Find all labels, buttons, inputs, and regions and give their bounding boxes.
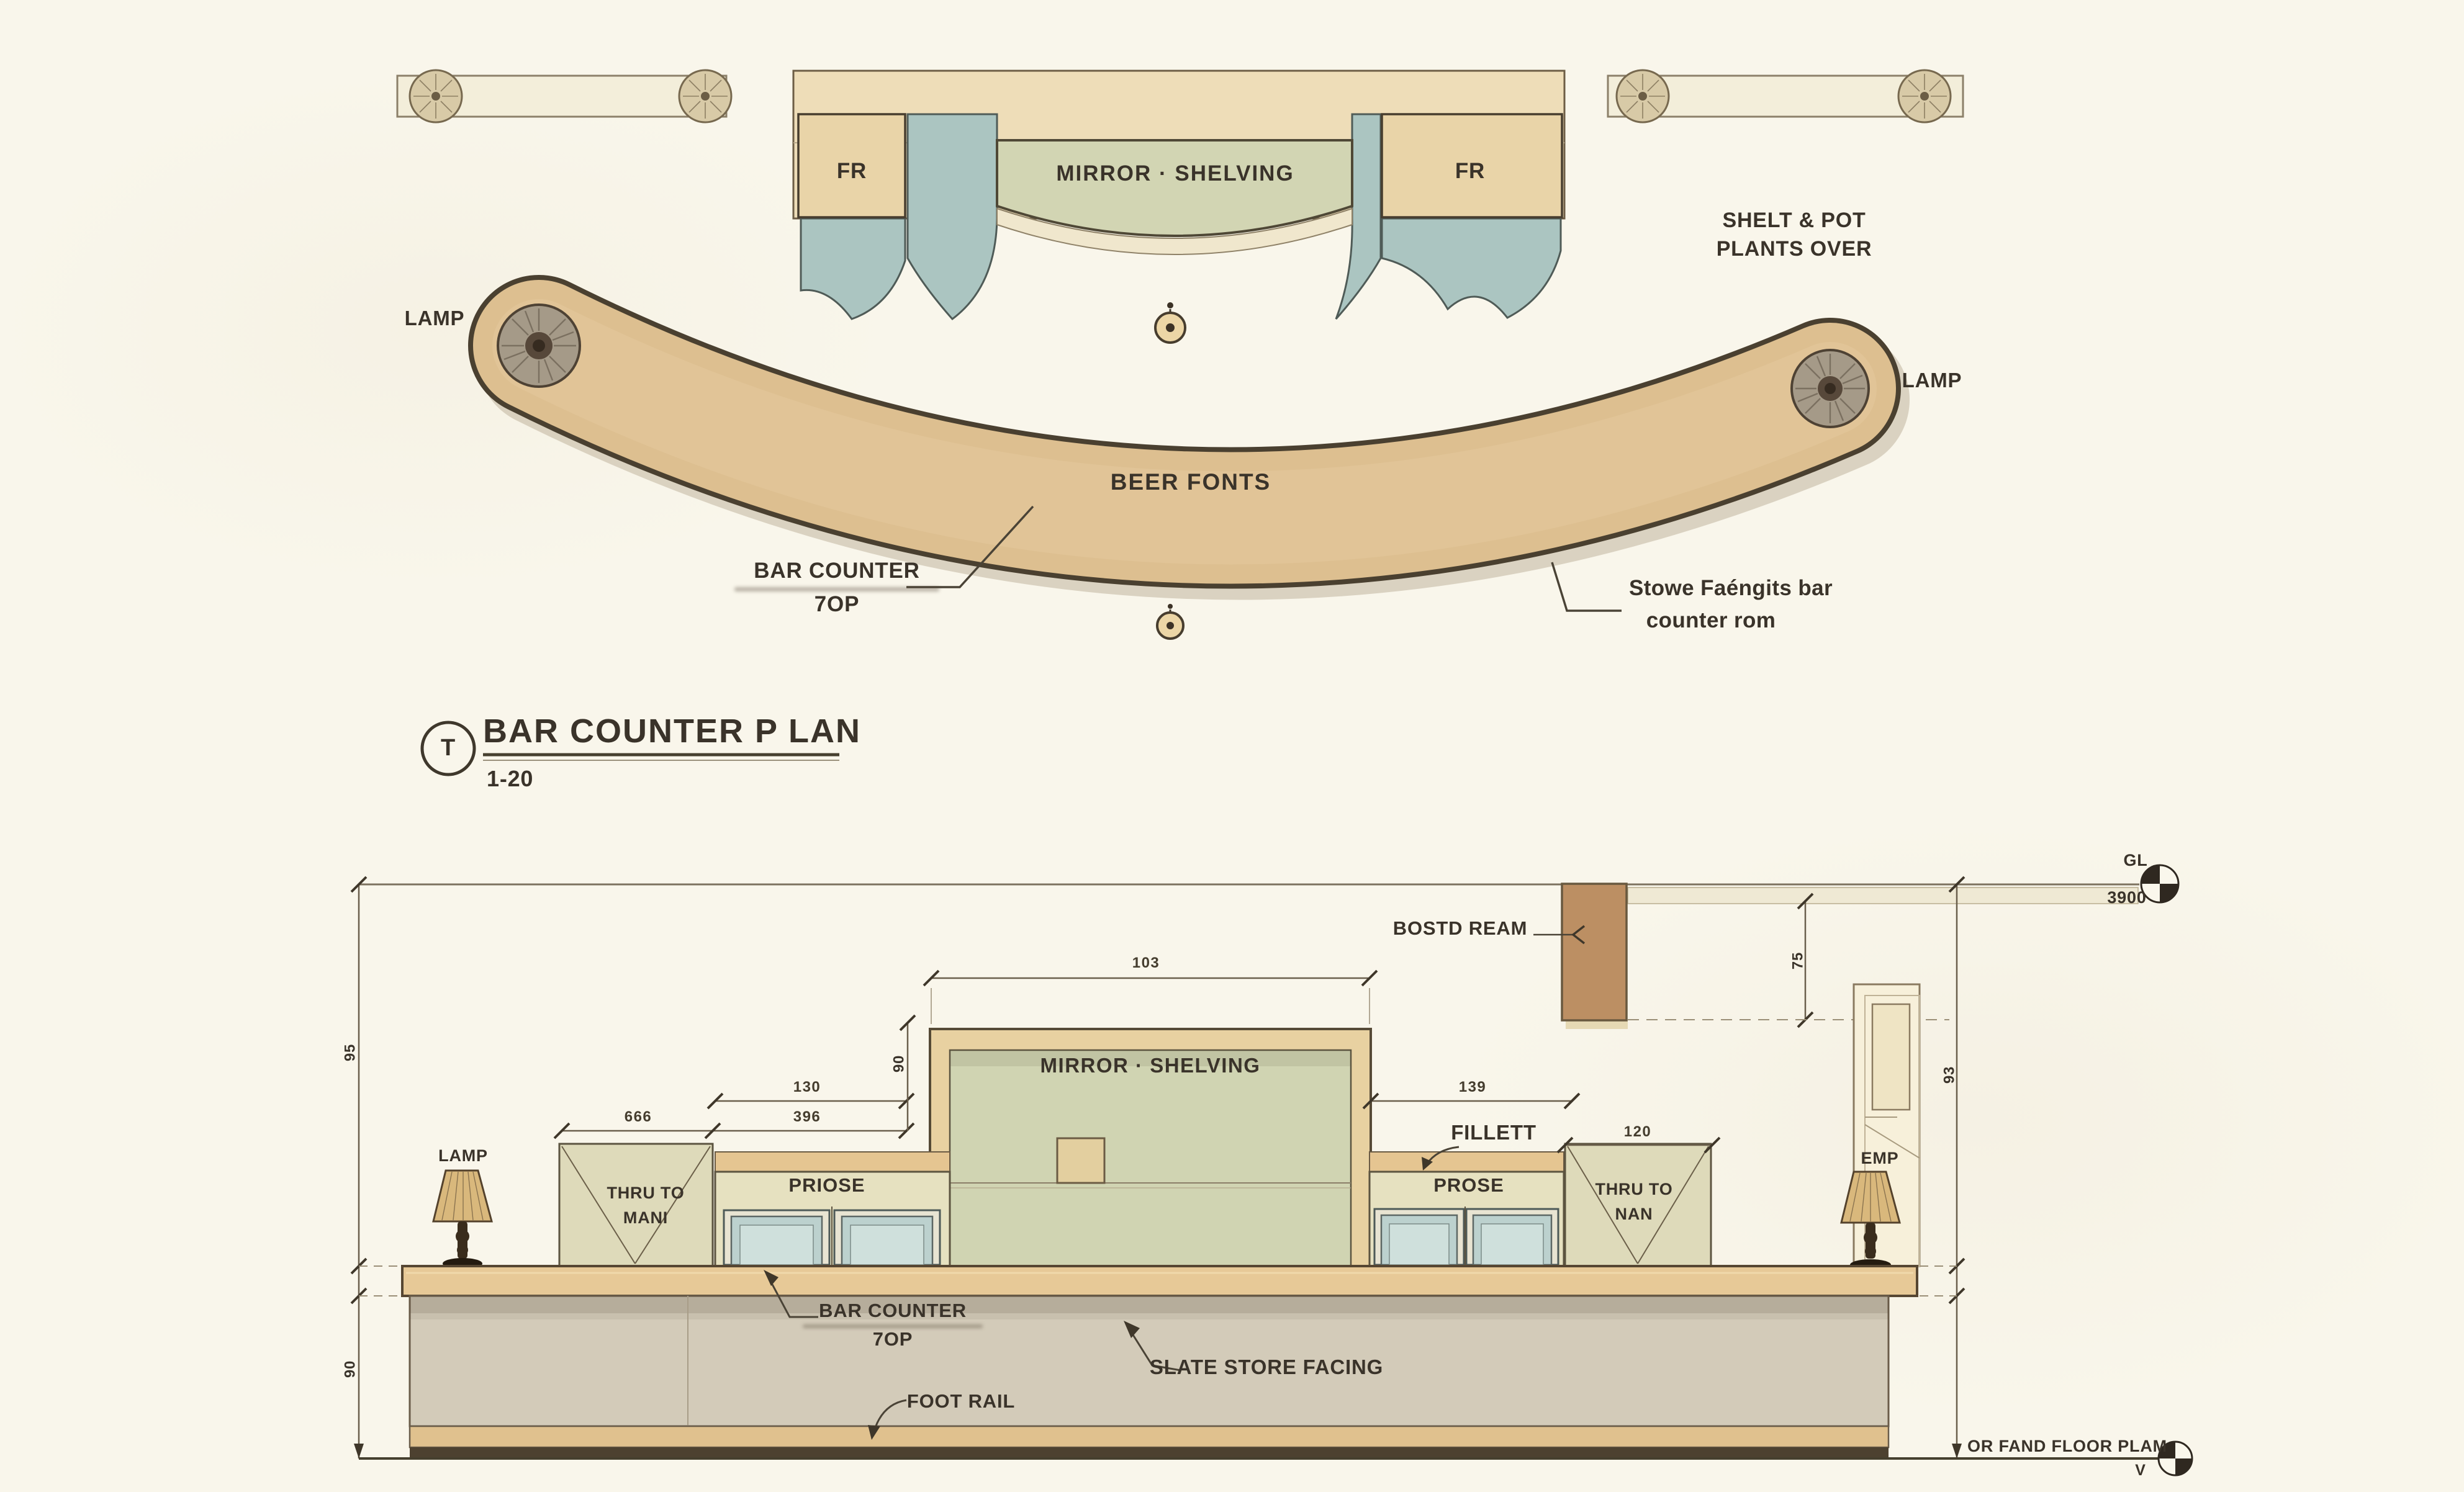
leader-line — [1552, 562, 1622, 611]
elev-lamp-label-right: EMP — [1861, 1149, 1899, 1167]
dim-130-label: 130 — [793, 1079, 821, 1096]
beam-label: BOSTD REAM — [1393, 919, 1527, 939]
elev-cabinet-left — [715, 1152, 950, 1266]
thru-left-line2: MANI — [623, 1209, 668, 1226]
dim-side-lower-label: 90 — [342, 1360, 358, 1378]
thru-right-line1: THRU TO — [1595, 1180, 1672, 1198]
plan-counter-label-line1: BAR COUNTER — [754, 560, 919, 583]
mirror-shelving-panel — [997, 140, 1352, 236]
datum-symbol-icon — [2141, 865, 2178, 902]
elev-mirror-shelving-label: MIRROR · SHELVING — [1040, 1055, 1261, 1077]
dim-right-main — [1920, 877, 1964, 1458]
gl-value: 3900 — [2107, 889, 2146, 906]
dim-center-width-label: 103 — [1132, 955, 1160, 972]
elev-thru-panel-left — [559, 1144, 713, 1266]
cabinet-left-label: PRIOSE — [788, 1175, 865, 1196]
elev-countertop — [402, 1266, 1917, 1296]
pot-plant-icon — [679, 70, 731, 122]
ghost-subtext — [734, 587, 939, 591]
title-marker: T — [441, 736, 456, 761]
dim-93-label: 93 — [1941, 1066, 1957, 1084]
foot-rail-label: FOOT RAIL — [907, 1391, 1015, 1412]
drawing-scale: 1-20 — [487, 767, 533, 791]
table-lamp-icon — [433, 1171, 492, 1269]
plan-lamp-label-left: LAMP — [405, 308, 465, 330]
plan-back-fitting — [793, 71, 1564, 319]
shelf-note-line1: SHELT & POT — [1722, 210, 1866, 232]
elev-cabinet-right — [1370, 1152, 1564, 1266]
dim-left-main — [351, 877, 411, 1458]
elev-base-shadow — [410, 1447, 1889, 1457]
elev-lamp-label-left: LAMP — [438, 1147, 488, 1164]
plan-lamp-label-right: LAMP — [1902, 370, 1962, 392]
elev-counter-label-line1: BAR COUNTER — [819, 1301, 967, 1321]
drawing-sheet: FR FR MIRROR · SHELVING SHELT & POT PLAN… — [0, 0, 2464, 1492]
fr-label-right: FR — [1455, 160, 1485, 183]
dim-396-label: 396 — [793, 1108, 821, 1126]
fridge-door — [724, 1210, 829, 1265]
dim-666-label: 666 — [625, 1108, 652, 1126]
dim-120-label: 120 — [1624, 1123, 1652, 1141]
pot-plant-icon — [1898, 70, 1951, 122]
fillett-label: FILLETT — [1451, 1122, 1537, 1144]
shelving-drape — [801, 218, 905, 319]
pot-plant-icon — [1617, 70, 1669, 122]
slate-facing-label: SLATE STORE FACING — [1150, 1357, 1383, 1378]
dim-90-label: 90 — [891, 1055, 906, 1072]
shelving-drape — [908, 114, 997, 319]
beer-fonts-label: BEER FONTS — [1111, 470, 1271, 495]
plan-counter-label-line2: 7OP — [815, 593, 859, 616]
shelving-drape — [1382, 218, 1561, 318]
fr-label-left: FR — [837, 160, 867, 183]
ceiling-strip — [1628, 888, 2138, 904]
dim-139-label: 139 — [1459, 1079, 1487, 1096]
plan-mirror-shelving-label: MIRROR · SHELVING — [1056, 163, 1294, 186]
fridge-door — [834, 1210, 940, 1265]
lamp-plan-icon — [1792, 350, 1869, 427]
floor-marker: V — [2135, 1462, 2146, 1478]
boxed-beam — [1562, 884, 1628, 1029]
shelf-note-line2: PLANTS OVER — [1717, 238, 1872, 261]
fridge-door — [1374, 1209, 1464, 1265]
elevation-view — [351, 865, 2192, 1475]
elev-foot-rail — [410, 1426, 1889, 1447]
cabinet-right-label: PROSE — [1433, 1175, 1504, 1196]
thru-right-line2: NAN — [1615, 1205, 1653, 1223]
floor-plan-label: OR FAND FLOOR PLAM — [1967, 1437, 2167, 1455]
dim-75-label: 75 — [1790, 952, 1805, 969]
linework-layer — [0, 0, 2464, 1492]
dim-center-width — [924, 971, 1377, 1024]
drawing-title: BAR COUNTER P LAN — [483, 714, 861, 749]
door — [1854, 984, 1920, 1266]
thru-left-line1: THRU TO — [607, 1184, 684, 1202]
shelf-box — [1057, 1138, 1104, 1183]
dim-side-upper-label: 95 — [342, 1044, 358, 1061]
elev-counter-label-line2: 7OP — [873, 1329, 913, 1350]
gl-label: GL — [2123, 852, 2147, 869]
pendant-light-icon — [1157, 604, 1183, 639]
lamp-plan-icon — [498, 305, 580, 387]
plan-bar-counter — [539, 346, 1839, 529]
fridge-door — [1466, 1209, 1558, 1265]
pot-plant-icon — [410, 70, 462, 122]
pendant-light-icon — [1155, 302, 1185, 343]
dim-left-cluster — [554, 1015, 915, 1138]
plan-note-line1: Stowe Faéngits bar — [1629, 577, 1833, 600]
plan-note-line2: counter rom — [1646, 609, 1776, 632]
